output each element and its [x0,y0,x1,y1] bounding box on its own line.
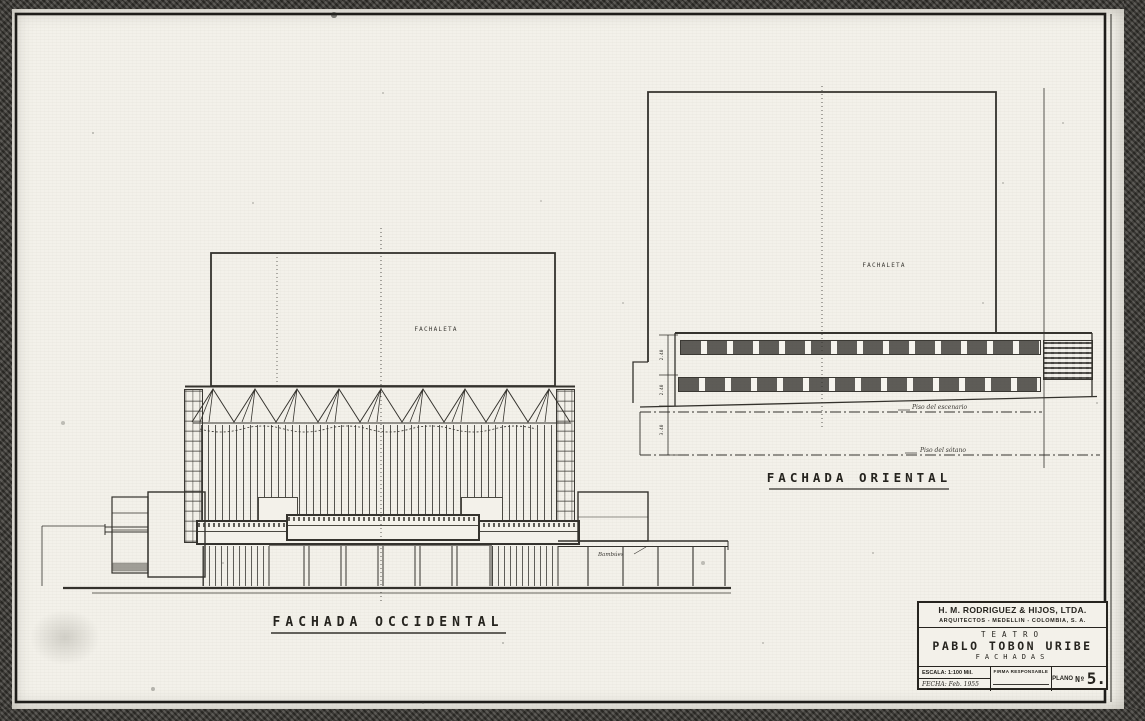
scale-date-cell: ESCALA: 1:100 Mil. FECHA: Feb. 1955 [919,667,991,691]
project-name: PABLO TOBON URIBE [919,639,1106,653]
signature-cell: FIRMA RESPONSABLE [991,667,1053,691]
scan-edge-left [0,0,12,721]
scale-field: ESCALA: 1:100 Mil. [919,667,990,679]
firm-name: H. M. RODRIGUEZ & HIJOS, LTDA. [919,603,1106,618]
dim-label-3: 3.40 [659,424,665,435]
signature-label: FIRMA RESPONSABLE [991,667,1052,674]
project-type: TEATRO [919,628,1106,639]
sheet-label: PLANO [1052,676,1073,682]
title-block: H. M. RODRIGUEZ & HIJOS, LTDA. ARQUITECT… [917,601,1108,690]
basement-floor-label: Piso del sótano [919,447,966,454]
scan-edge-right [1124,0,1145,721]
sheet-ordinal: Nº [1075,675,1085,684]
drawing-sheet: FACHALETA Bambúes FACHADA OCCIDENT [0,0,1145,721]
dim-label-1: 2.40 [659,349,665,360]
stage-floor-label: Piso del escenario [911,404,968,411]
scan-stain [30,610,100,665]
date-field: FECHA: Feb. 1955 [919,679,990,691]
sheet-digit: 5. [1087,671,1106,687]
project-title-area: TEATRO PABLO TOBON URIBE FACHADAS [919,628,1106,667]
scan-edge-top [0,0,1145,9]
west-elevation-drawing: FACHALETA Bambúes FACHADA OCCIDENT [42,228,731,633]
sheet-number-cell: PLANO Nº 5. [1052,667,1106,691]
firm-info: ARQUITECTOS - MEDELLIN - COLOMBIA, S. A. [919,618,1106,628]
scan-edge-bottom [0,709,1145,721]
east-elevation-title: FACHADA ORIENTAL [767,470,951,485]
signature-line [993,684,1050,685]
dim-label-2: 2.40 [659,384,665,395]
sheet-subject: FACHADAS [919,653,1106,661]
west-elevation-title: FACHADA OCCIDENTAL [273,615,504,630]
title-block-bottom-row: ESCALA: 1:100 Mil. FECHA: Feb. 1955 FIRM… [919,667,1106,691]
canopy-note: Bambúes [597,551,624,558]
fachaleta-label-east: FACHALETA [862,262,905,269]
east-elevation-drawing: FACHALETA 2.40 2.40 3.40 Piso del escena… [633,86,1100,489]
sheet-frame [16,14,1111,702]
fachaleta-label-west: FACHALETA [414,326,457,333]
